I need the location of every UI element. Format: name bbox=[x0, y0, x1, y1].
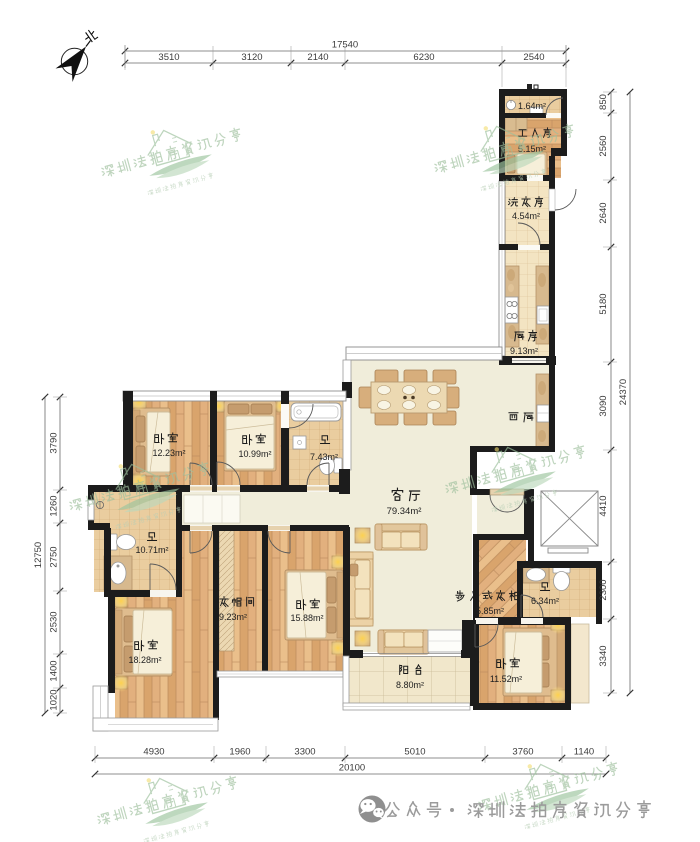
svg-text:1.64m²: 1.64m² bbox=[518, 101, 546, 111]
svg-text:5010: 5010 bbox=[404, 747, 425, 758]
svg-text:4930: 4930 bbox=[143, 747, 164, 758]
svg-text:2300: 2300 bbox=[598, 579, 609, 600]
svg-text:4410: 4410 bbox=[598, 495, 609, 516]
svg-text:3790: 3790 bbox=[49, 432, 60, 453]
svg-text:2140: 2140 bbox=[307, 52, 328, 63]
svg-text:79.34m²: 79.34m² bbox=[387, 506, 422, 517]
svg-text:2750: 2750 bbox=[49, 546, 60, 567]
svg-text:18.28m²: 18.28m² bbox=[128, 655, 161, 665]
svg-text:8.80m²: 8.80m² bbox=[396, 680, 424, 690]
svg-text:3300: 3300 bbox=[294, 747, 315, 758]
svg-text:9.23m²: 9.23m² bbox=[219, 612, 247, 622]
svg-text:2530: 2530 bbox=[49, 611, 60, 632]
svg-text:4.54m²: 4.54m² bbox=[512, 211, 540, 221]
svg-text:3120: 3120 bbox=[241, 52, 262, 63]
svg-text:12750: 12750 bbox=[33, 542, 44, 568]
svg-text:1260: 1260 bbox=[49, 495, 60, 516]
svg-text:15.88m²: 15.88m² bbox=[290, 613, 323, 623]
svg-text:10.99m²: 10.99m² bbox=[238, 449, 271, 459]
svg-text:3760: 3760 bbox=[512, 747, 533, 758]
svg-text:6230: 6230 bbox=[413, 52, 434, 63]
svg-text:2540: 2540 bbox=[523, 52, 544, 63]
svg-text:2640: 2640 bbox=[598, 202, 609, 223]
svg-text:3510: 3510 bbox=[158, 52, 179, 63]
svg-text:9.13m²: 9.13m² bbox=[510, 346, 538, 356]
svg-text:1400: 1400 bbox=[49, 660, 60, 681]
svg-text:7.43m²: 7.43m² bbox=[310, 452, 338, 462]
svg-text:850: 850 bbox=[598, 94, 609, 110]
svg-text:11.52m²: 11.52m² bbox=[490, 674, 522, 684]
svg-text:6.34m²: 6.34m² bbox=[531, 596, 559, 606]
svg-text:24370: 24370 bbox=[618, 379, 629, 405]
svg-text:5.85m²: 5.85m² bbox=[476, 606, 504, 616]
svg-text:10.71m²: 10.71m² bbox=[135, 545, 168, 555]
svg-text:5180: 5180 bbox=[598, 293, 609, 314]
svg-text:12.23m²: 12.23m² bbox=[152, 448, 185, 458]
svg-text:2560: 2560 bbox=[598, 135, 609, 156]
svg-text:20100: 20100 bbox=[339, 763, 365, 774]
svg-text:1140: 1140 bbox=[574, 747, 594, 758]
svg-text:1960: 1960 bbox=[229, 747, 250, 758]
svg-text:3340: 3340 bbox=[598, 645, 609, 666]
svg-text:3090: 3090 bbox=[598, 395, 609, 416]
svg-text:1020: 1020 bbox=[49, 689, 60, 710]
